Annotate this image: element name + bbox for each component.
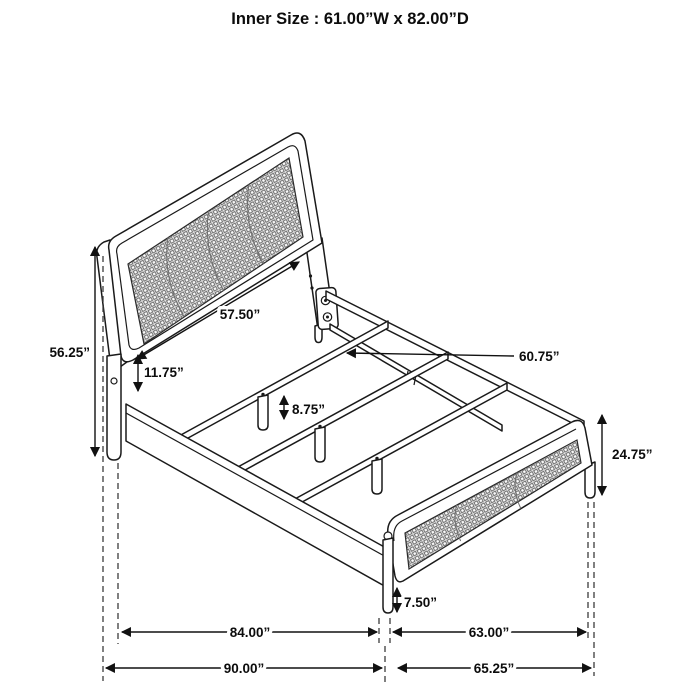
bed-frame — [126, 291, 584, 588]
slat-screw — [318, 425, 321, 428]
post-screw — [309, 274, 312, 277]
dim-label-rail-gap: 11.75” — [144, 365, 184, 380]
dim-label-headboard-height: 56.25” — [49, 345, 90, 360]
leg-peg — [111, 378, 117, 384]
footboard-front-leg — [383, 538, 393, 613]
diagram-title: Inner Size : 61.00”W x 82.00”D — [231, 10, 469, 28]
post-screw — [310, 286, 313, 289]
slat-support-leg — [315, 427, 325, 462]
bed-dimension-diagram-page: Inner Size : 61.00”W x 82.00”D 56.25” 57… — [0, 0, 700, 700]
dim-label-footboard-inner-width: 63.00” — [469, 625, 510, 640]
dim-label-slat-leg: 8.75” — [292, 402, 325, 417]
dim-label-overall-width: 65.25” — [474, 661, 515, 676]
headboard-front-leg — [107, 354, 121, 460]
slat — [179, 321, 388, 443]
left-side-rail — [126, 404, 388, 588]
slat-support-leg — [258, 395, 268, 430]
footboard — [383, 420, 595, 613]
dim-label-footboard-leg: 7.50” — [404, 595, 437, 610]
slat-support-leg — [372, 459, 382, 494]
slat-screw — [261, 393, 264, 396]
left-rail-top-edge — [126, 413, 388, 558]
dim-label-headboard-width: 57.50” — [220, 307, 261, 322]
bed-frame-dimension-diagram: Inner Size : 61.00”W x 82.00”D 56.25” 57… — [0, 0, 700, 700]
slat-screw — [375, 457, 378, 460]
dim-label-overall-depth: 90.00” — [224, 661, 265, 676]
dim-label-frame-length: 84.00” — [230, 625, 271, 640]
dim-label-slat-length: 60.75” — [519, 349, 560, 364]
dim-label-footboard-height: 24.75” — [612, 447, 653, 462]
bracket-hole-center — [326, 316, 329, 319]
